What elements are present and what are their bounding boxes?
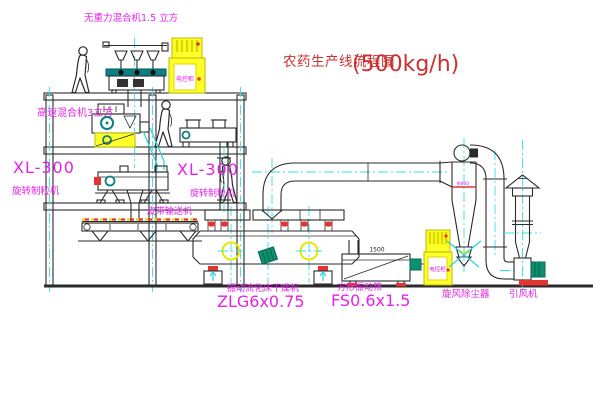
- cad-canvas: 电控柜: [0, 0, 600, 403]
- worker-figure-level2: [155, 101, 172, 147]
- title-capacity: (500kg/h): [352, 52, 459, 77]
- label-granulator-left-name: 旋转制粒机: [12, 185, 60, 197]
- label-fan: 引风机: [509, 288, 538, 300]
- belt-conveyor: [78, 220, 202, 242]
- control-cabinet-cyclone: 电控柜: [424, 230, 452, 285]
- label-screen-model: FS0.6x1.5: [331, 291, 410, 310]
- label-dryer-model: ZLG6x0.75: [217, 292, 305, 311]
- vibrating-screen: 1500: [342, 240, 425, 287]
- drawing-title: 农药生产线流程图 (500kg/h): [283, 52, 459, 77]
- control-cabinet-roof: 电控柜: [169, 38, 205, 93]
- label-cyclone: 旋风除尘器: [442, 288, 490, 300]
- cabinet-cyclone-label: 电控柜: [429, 265, 446, 273]
- return-duct: [470, 145, 516, 279]
- label-granulator-right-name: 旋转制粒机: [190, 187, 235, 199]
- label-granulator-right-model: XL-300: [177, 160, 239, 179]
- fluid-bed-dryer: [193, 206, 359, 284]
- label-granulator-left-model: XL-300: [13, 158, 75, 177]
- process-flow-diagram: 电控柜: [0, 0, 600, 403]
- exhaust-duct: [252, 158, 452, 233]
- label-top-mixer: 无重力混合机1.5 立方: [84, 12, 178, 24]
- worker-figure-roof: [72, 47, 89, 93]
- screen-dimension: 1500: [369, 247, 384, 254]
- cabinet-roof-label: 电控柜: [176, 75, 194, 83]
- induced-draft-fan: [514, 258, 548, 286]
- label-belt-conveyor: 皮带输送机: [147, 205, 192, 217]
- label-hs-mixer: 高速混合机3立方: [37, 106, 113, 119]
- cyclone-note: Φ800: [457, 181, 469, 187]
